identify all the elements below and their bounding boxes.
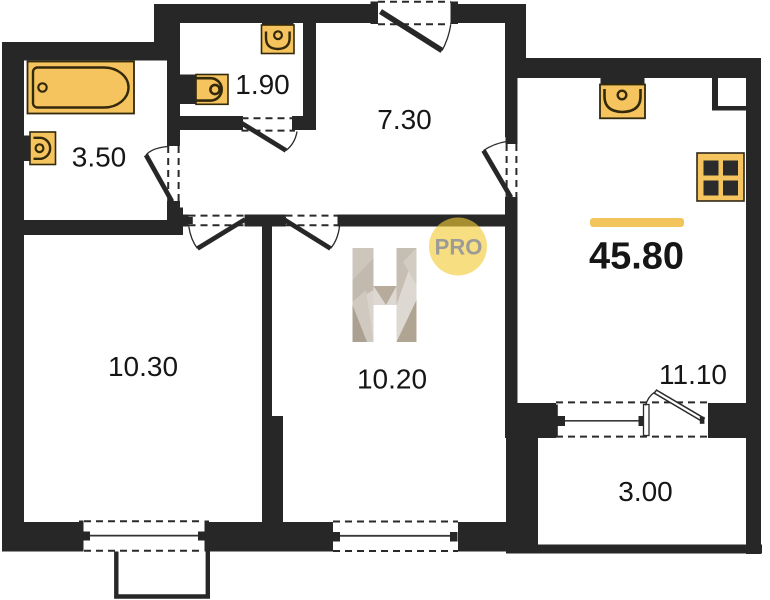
svg-text:PRO: PRO	[435, 235, 483, 260]
svg-text:10.20: 10.20	[357, 364, 427, 395]
svg-text:7.30: 7.30	[377, 104, 432, 135]
svg-text:11.10: 11.10	[659, 359, 727, 390]
svg-text:3.50: 3.50	[72, 142, 127, 173]
svg-text:3.00: 3.00	[618, 476, 673, 507]
svg-text:10.30: 10.30	[108, 351, 178, 382]
svg-text:1.90: 1.90	[235, 69, 290, 100]
svg-text:45.80: 45.80	[589, 236, 684, 278]
